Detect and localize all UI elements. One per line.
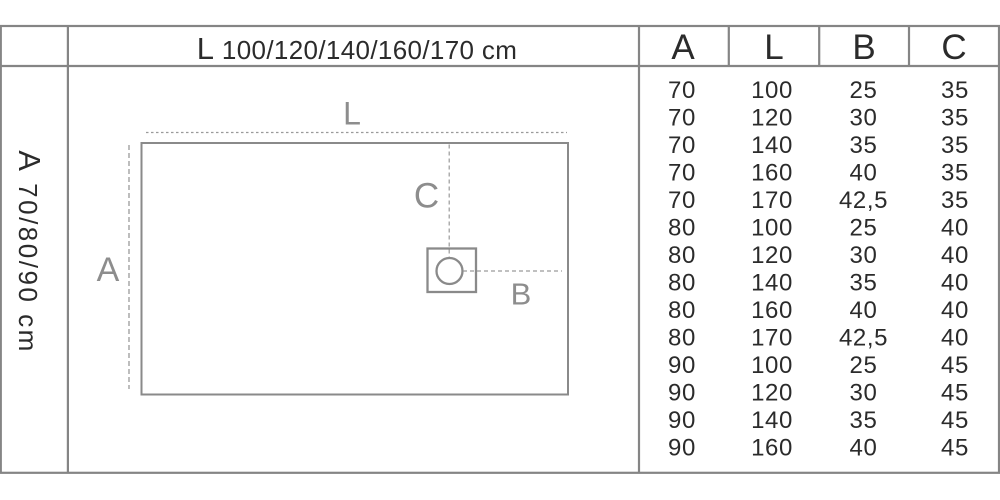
svg-text:80: 80 [668,242,696,269]
svg-text:140: 140 [751,270,793,297]
svg-text:45: 45 [941,407,969,434]
svg-text:170: 170 [751,325,793,352]
svg-text:A: A [671,28,695,67]
svg-text:70: 70 [668,160,696,187]
svg-text:120: 120 [751,105,793,132]
svg-text:30: 30 [850,380,878,407]
svg-text:100: 100 [751,352,793,379]
svg-text:L: L [764,28,783,67]
svg-text:40: 40 [850,297,878,324]
svg-text:70: 70 [668,105,696,132]
svg-text:25: 25 [850,215,878,242]
svg-text:C: C [414,177,439,216]
svg-text:35: 35 [941,187,969,214]
svg-text:80: 80 [668,325,696,352]
svg-text:90: 90 [668,380,696,407]
svg-text:90: 90 [668,407,696,434]
svg-text:90: 90 [668,435,696,462]
svg-text:45: 45 [941,380,969,407]
svg-text:40: 40 [941,242,969,269]
svg-text:30: 30 [850,105,878,132]
svg-text:L 100/120/140/160/170 cm: L 100/120/140/160/170 cm [197,31,518,66]
svg-text:42,5: 42,5 [839,187,888,214]
svg-text:70: 70 [668,187,696,214]
svg-text:160: 160 [751,435,793,462]
svg-text:120: 120 [751,242,793,269]
svg-text:35: 35 [941,77,969,104]
svg-text:C: C [941,28,966,67]
svg-text:B: B [511,277,532,312]
svg-text:30: 30 [850,242,878,269]
svg-text:80: 80 [668,297,696,324]
svg-text:80: 80 [668,270,696,297]
svg-text:25: 25 [850,77,878,104]
svg-text:160: 160 [751,297,793,324]
svg-text:140: 140 [751,132,793,159]
svg-text:45: 45 [941,435,969,462]
svg-text:35: 35 [941,105,969,132]
svg-text:42,5: 42,5 [839,325,888,352]
svg-text:B: B [852,28,875,67]
svg-text:L: L [343,96,361,132]
svg-text:35: 35 [850,270,878,297]
svg-text:120: 120 [751,380,793,407]
svg-text:70: 70 [668,77,696,104]
svg-text:35: 35 [850,407,878,434]
svg-text:35: 35 [941,132,969,159]
svg-text:100: 100 [751,77,793,104]
svg-text:45: 45 [941,352,969,379]
svg-text:40: 40 [941,297,969,324]
svg-text:70: 70 [668,132,696,159]
svg-text:80: 80 [668,215,696,242]
svg-text:170: 170 [751,187,793,214]
svg-text:40: 40 [850,160,878,187]
svg-text:25: 25 [850,352,878,379]
svg-text:90: 90 [668,352,696,379]
svg-text:40: 40 [941,215,969,242]
svg-text:160: 160 [751,160,793,187]
svg-text:35: 35 [941,160,969,187]
svg-text:100: 100 [751,215,793,242]
svg-text:A 70/80/90 cm: A 70/80/90 cm [12,150,47,354]
svg-text:35: 35 [850,132,878,159]
svg-text:40: 40 [941,325,969,352]
svg-text:40: 40 [850,435,878,462]
svg-text:40: 40 [941,270,969,297]
svg-text:A: A [97,251,120,289]
svg-text:140: 140 [751,407,793,434]
